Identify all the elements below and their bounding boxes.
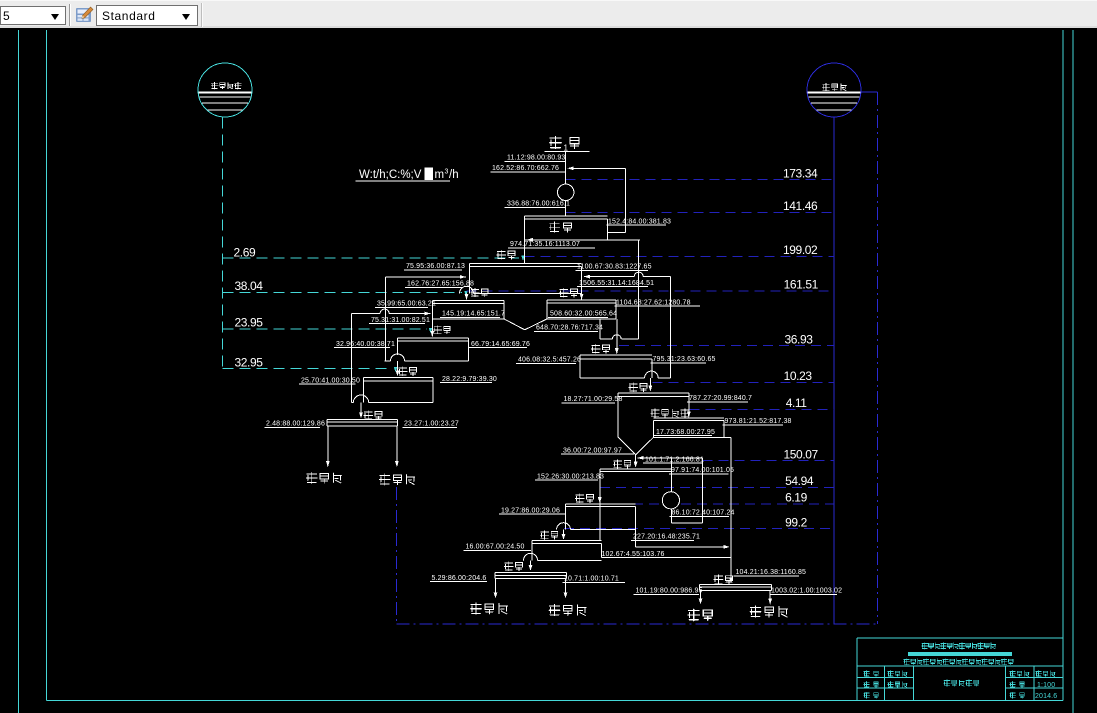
svg-text:1100.67:30.83:1227.65: 1100.67:30.83:1227.65 [577, 263, 652, 270]
svg-text:152.26:30.00:213.83: 152.26:30.00:213.83 [537, 473, 604, 480]
svg-text:162.52:86.70:662.76: 162.52:86.70:662.76 [492, 165, 559, 172]
svg-text:150.07: 150.07 [784, 447, 819, 461]
svg-text:1:100: 1:100 [1037, 682, 1055, 689]
svg-text:406.08:32.5:457.26: 406.08:32.5:457.26 [518, 357, 581, 364]
svg-text:99.2: 99.2 [785, 516, 807, 530]
svg-text:36.00:72.00:97.97: 36.00:72.00:97.97 [563, 447, 622, 454]
svg-text:32.96:40.00:38.71: 32.96:40.00:38.71 [336, 341, 395, 348]
svg-text:16.00:67.00:24.50: 16.00:67.00:24.50 [466, 544, 525, 551]
svg-text:6.19: 6.19 [785, 490, 807, 504]
svg-text:28.22:9.79:39.30: 28.22:9.79:39.30 [442, 376, 497, 383]
svg-text:141.46: 141.46 [783, 199, 818, 213]
svg-text:35.99:65.00:63.21: 35.99:65.00:63.21 [377, 301, 436, 308]
svg-text:1003.02:1.00:1003.02: 1003.02:1.00:1003.02 [771, 588, 842, 595]
svg-text:101.19:80.00:986.95: 101.19:80.00:986.95 [636, 588, 703, 595]
svg-text:4.11: 4.11 [786, 396, 808, 410]
svg-text:23.27:1.00:23.27: 23.27:1.00:23.27 [404, 420, 459, 427]
svg-text:18.27:71.00:29.58: 18.27:71.00:29.58 [564, 396, 623, 403]
svg-text:199.02: 199.02 [783, 243, 818, 257]
svg-text:173.34: 173.34 [783, 166, 818, 180]
svg-text:508.60:32.00:565.64: 508.60:32.00:565.64 [550, 311, 617, 318]
svg-text:23.95: 23.95 [235, 316, 264, 330]
svg-text:86.10:72.40:107.24: 86.10:72.40:107.24 [672, 510, 735, 517]
svg-text:1506.55:31.14:1684.51: 1506.55:31.14:1684.51 [579, 280, 654, 287]
svg-text:54.94: 54.94 [785, 474, 814, 488]
svg-text:5.29:86.00:204.6: 5.29:86.00:204.6 [432, 575, 487, 582]
svg-text:m: m [435, 169, 445, 181]
svg-text:102.67:4.55:103.76: 102.67:4.55:103.76 [602, 551, 665, 558]
svg-text:3: 3 [445, 169, 449, 176]
svg-text:2014.6: 2014.6 [1035, 693, 1057, 700]
svg-text:145.19:14.65:151.7: 145.19:14.65:151.7 [442, 311, 505, 318]
svg-text:787.27:20.99:840.7: 787.27:20.99:840.7 [689, 395, 752, 402]
svg-text:2.48:88.00:129.86: 2.48:88.00:129.86 [266, 420, 325, 427]
svg-text:10.71:1.00:10.71: 10.71:1.00:10.71 [564, 576, 619, 583]
svg-text:66.79:14.65:69.76: 66.79:14.65:69.76 [471, 341, 530, 348]
svg-text:25.70:41.00:30.50: 25.70:41.00:30.50 [301, 377, 360, 384]
svg-text:152.4:84.00:381.83: 152.4:84.00:381.83 [608, 218, 671, 225]
svg-text:2.69: 2.69 [234, 246, 256, 260]
svg-text:973.81:21.52:817.38: 973.81:21.52:817.38 [725, 418, 792, 425]
svg-text:75.31:31.00:82.51: 75.31:31.00:82.51 [371, 317, 430, 324]
svg-text:227.20:16.48:235.71: 227.20:16.48:235.71 [633, 534, 700, 541]
svg-text:19.27:86.00:29.06: 19.27:86.00:29.06 [501, 507, 560, 514]
svg-text:97.91:74.00:101.05: 97.91:74.00:101.05 [671, 467, 734, 474]
svg-text:101.1:71.2:166.81: 101.1:71.2:166.81 [645, 456, 704, 463]
svg-text:161.51: 161.51 [784, 278, 819, 292]
svg-text:10.23: 10.23 [784, 369, 813, 383]
svg-text:/h: /h [449, 169, 459, 181]
svg-text:795.31:23.63:60.65: 795.31:23.63:60.65 [653, 356, 716, 363]
svg-text:38.04: 38.04 [235, 279, 264, 293]
svg-text:17.73:68.00:27.95: 17.73:68.00:27.95 [656, 429, 715, 436]
svg-text:162.76:27.65:156.88: 162.76:27.65:156.88 [407, 281, 474, 288]
svg-text:648.70:28.76:717.34: 648.70:28.76:717.34 [536, 325, 603, 332]
svg-text:104.21:16.38:1160.85: 104.21:16.38:1160.85 [736, 569, 807, 576]
svg-text:336.88:76.00:616.1: 336.88:76.00:616.1 [507, 201, 570, 208]
svg-text:32.95: 32.95 [235, 356, 264, 370]
svg-text:W:t/h;C:%;V: W:t/h;C:%;V [359, 169, 422, 181]
svg-text:11.12:98.00:80.93: 11.12:98.00:80.93 [507, 155, 565, 162]
svg-text:974.71:35.16:1113.07: 974.71:35.16:1113.07 [510, 241, 580, 248]
svg-text:36.93: 36.93 [785, 332, 814, 346]
svg-text:1104.68:27.62:1280.78: 1104.68:27.62:1280.78 [616, 299, 691, 306]
svg-text:75.95:36.00:87.13: 75.95:36.00:87.13 [406, 263, 465, 270]
